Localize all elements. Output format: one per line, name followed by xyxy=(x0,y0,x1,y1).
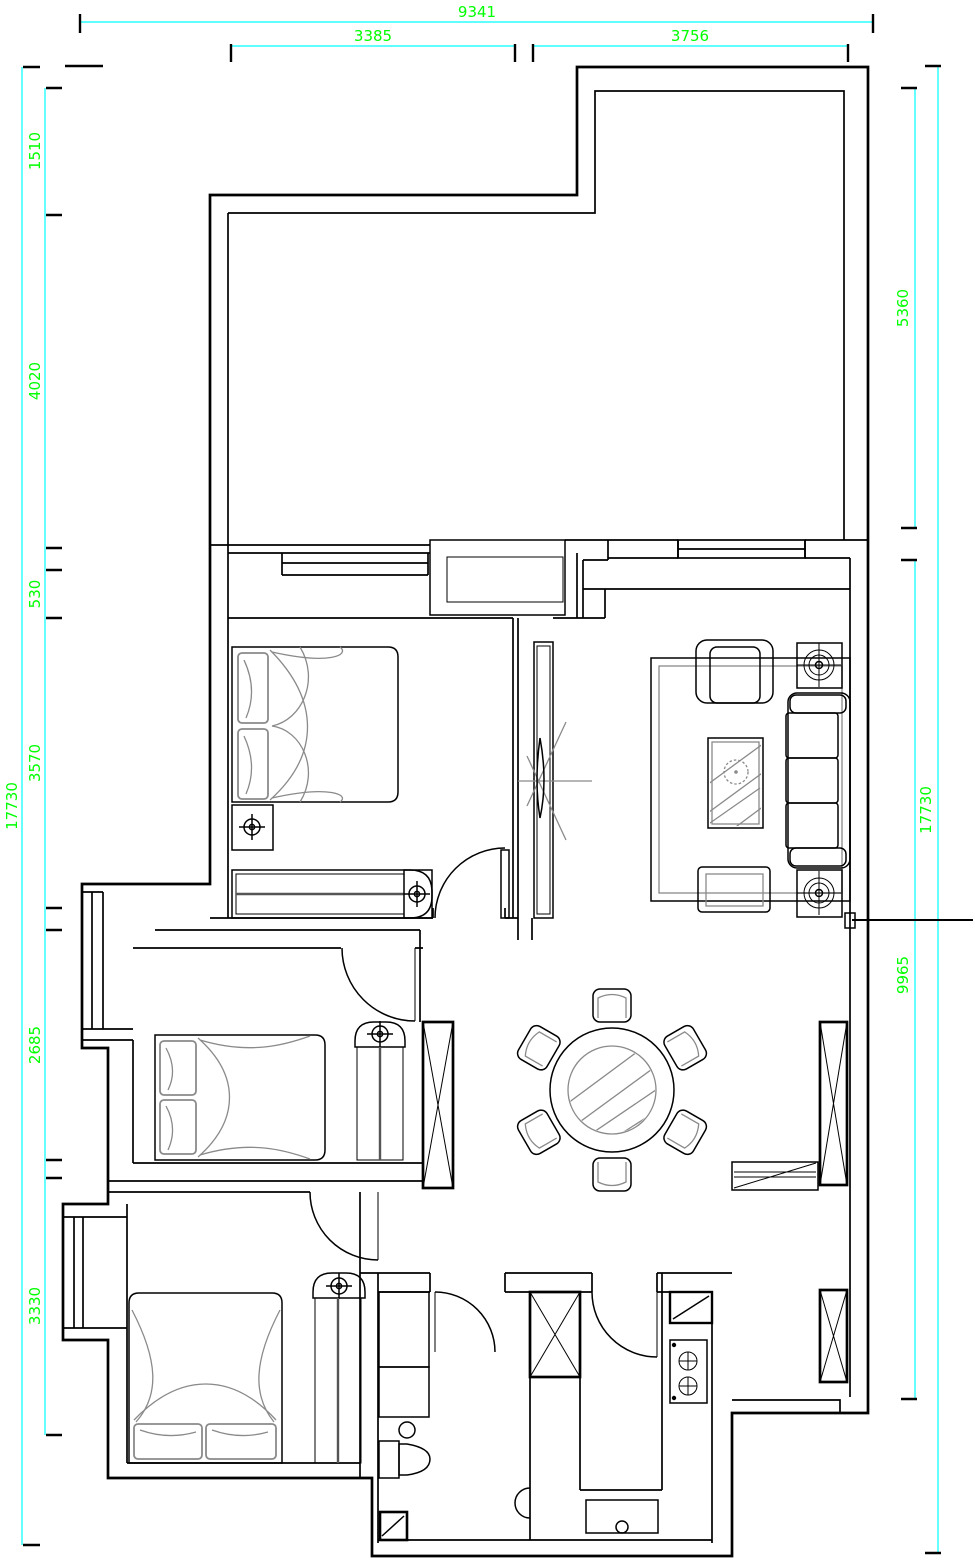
floor-plan-drawing: 9341 3385 3756 17730 1510 4020 530 3570 … xyxy=(0,0,975,1563)
dim-left-seg5: 2685 xyxy=(26,1026,44,1064)
bathroom-door xyxy=(435,1292,495,1352)
bedroom1-double-bed xyxy=(232,647,398,802)
dim-right-total: 17730 xyxy=(917,786,935,834)
side-table-lamp-top xyxy=(797,643,842,688)
sink-drain xyxy=(616,1521,628,1533)
dim-left-total: 17730 xyxy=(3,782,21,830)
bedroom3-walls xyxy=(63,1192,378,1543)
bedroom3-wardrobe xyxy=(313,1273,365,1463)
dim-left-seg2: 4020 xyxy=(26,362,44,400)
dim-top-right: 3756 xyxy=(671,27,709,45)
dim-top-total: 9341 xyxy=(458,3,496,21)
dim-right-seg1: 5360 xyxy=(894,289,912,327)
dimension-top: 9341 3385 3756 xyxy=(80,3,873,62)
column-east-lower xyxy=(820,1290,847,1382)
dim-left-seg3: 530 xyxy=(26,580,44,609)
dim-right-seg2: 9965 xyxy=(894,956,912,994)
bedroom2-bed xyxy=(155,1035,325,1160)
cutting-board xyxy=(670,1292,712,1323)
gas-stove xyxy=(670,1340,707,1403)
bedroom2-wardrobe xyxy=(355,1021,405,1160)
duct-shaft xyxy=(530,1292,580,1377)
shoe-cabinet xyxy=(732,1162,818,1190)
exterior-walls xyxy=(63,67,868,1556)
dim-left-seg4: 3570 xyxy=(26,744,44,782)
bathroom-vanity xyxy=(379,1292,429,1417)
dimension-left: 17730 1510 4020 530 3570 2685 3330 xyxy=(3,66,103,1545)
bedroom3-door xyxy=(310,1192,378,1260)
dim-left-seg6: 3330 xyxy=(26,1287,44,1325)
bedroom1-wardrobe xyxy=(232,870,432,918)
armchair xyxy=(696,640,773,703)
wash-basin xyxy=(515,1488,530,1518)
entry-door xyxy=(518,642,592,918)
floor-drain-circle xyxy=(399,1422,415,1438)
balcony-south-wall xyxy=(210,540,868,618)
dim-left-seg1: 1510 xyxy=(26,132,44,170)
tv-cabinet xyxy=(698,867,770,912)
shower-drain xyxy=(380,1512,407,1540)
entry-cabinet xyxy=(430,540,565,615)
floor-plan-canvas: 9341 3385 3756 17730 1510 4020 530 3570 … xyxy=(0,0,975,1563)
kitchen-door xyxy=(592,1292,657,1357)
dim-top-left: 3385 xyxy=(354,27,392,45)
column-east-upper xyxy=(820,1022,847,1185)
bedroom1-nightstand xyxy=(232,805,273,850)
sofa xyxy=(786,693,850,868)
dining-table xyxy=(515,989,709,1191)
bedroom3-bed xyxy=(129,1293,282,1463)
bedroom1-window xyxy=(282,553,428,575)
kitchen-counter xyxy=(580,1273,662,1533)
coffee-table xyxy=(700,735,780,835)
bedroom3-bay-window xyxy=(63,1204,127,1340)
column-dining-west xyxy=(423,1022,453,1188)
bedroom2-door xyxy=(342,948,415,1021)
bedroom1-door xyxy=(435,848,509,918)
dimension-right: 17730 5360 9965 xyxy=(852,66,973,1553)
side-table-lamp-bottom xyxy=(797,870,842,917)
toilet xyxy=(379,1441,430,1478)
bathroom-kitchen-walls xyxy=(360,1273,732,1543)
dining-chairs xyxy=(515,989,709,1191)
